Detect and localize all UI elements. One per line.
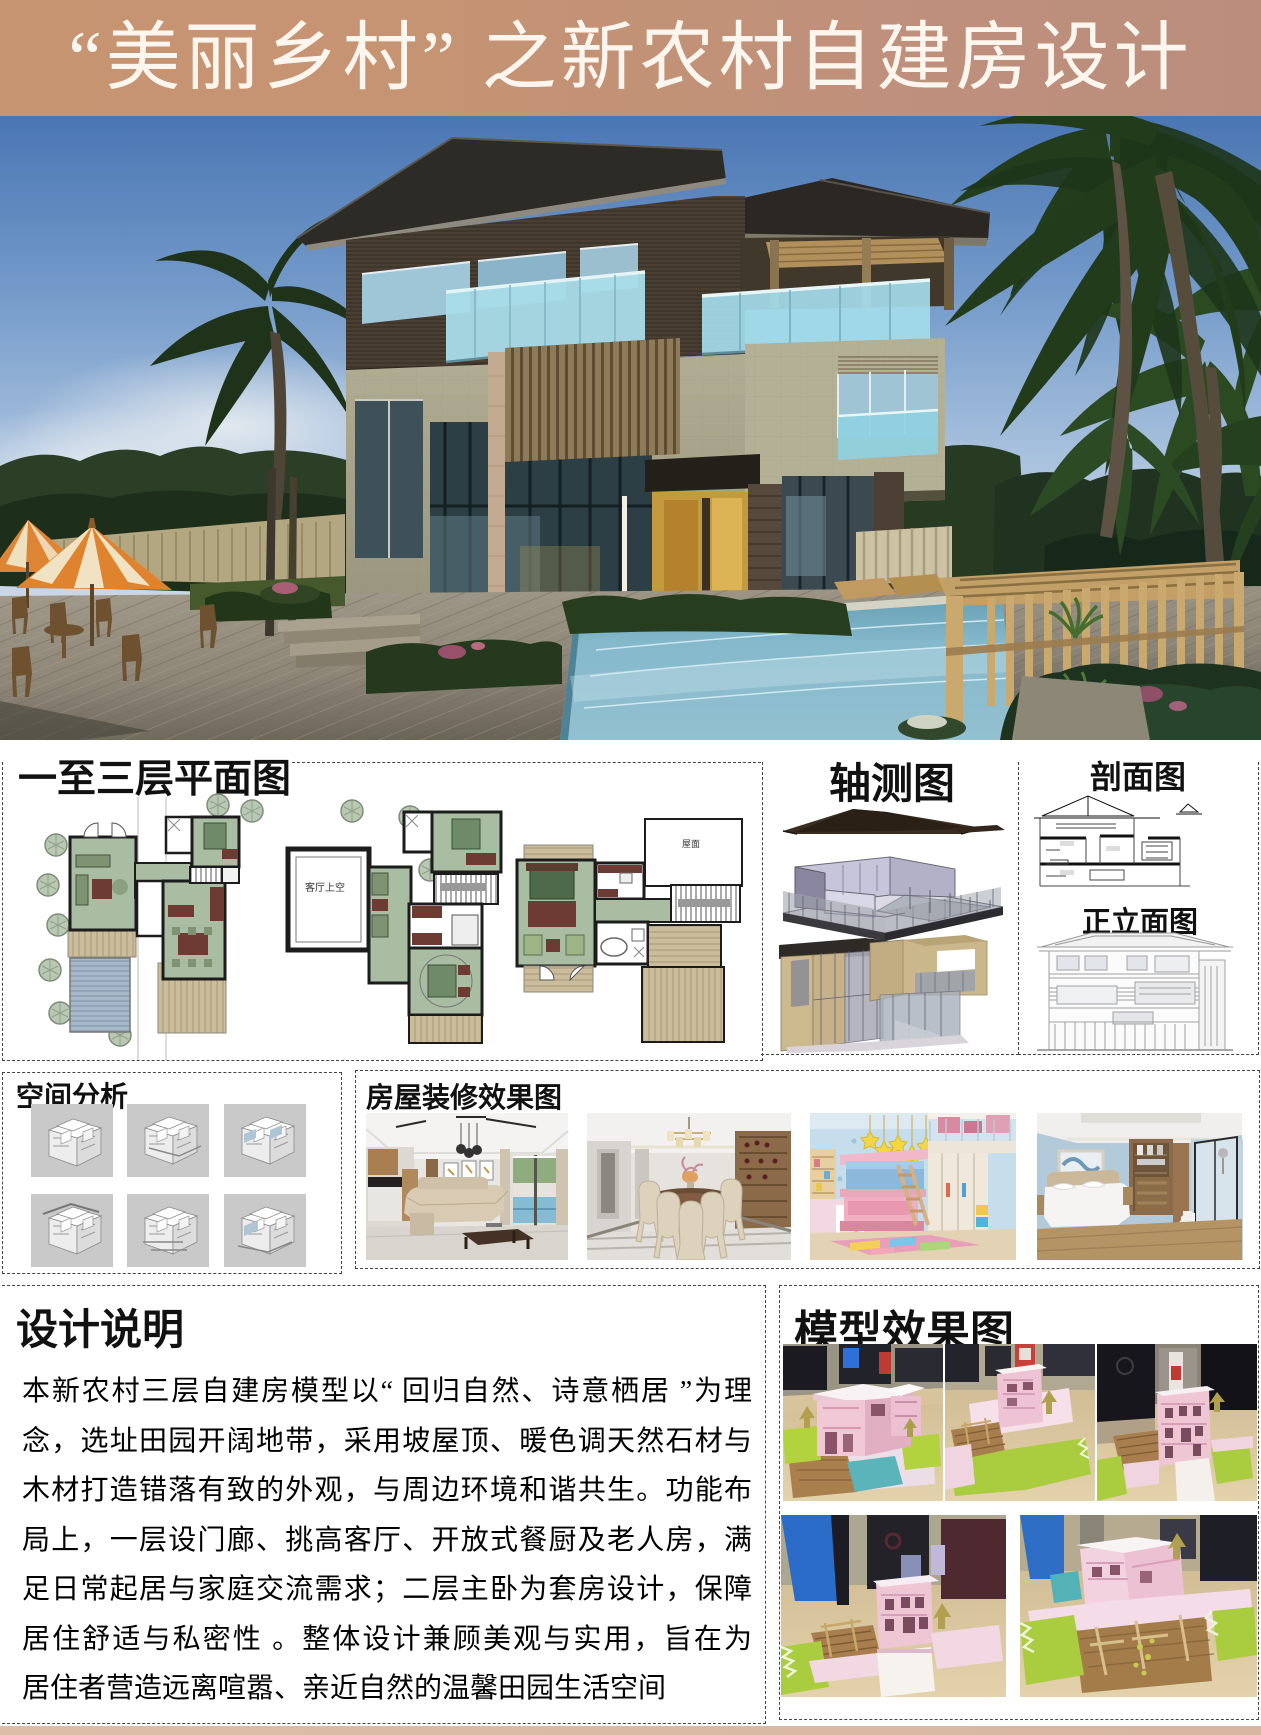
svg-text:屋面: 屋面 [682,839,700,849]
svg-text:客厅上空: 客厅上空 [305,881,345,894]
